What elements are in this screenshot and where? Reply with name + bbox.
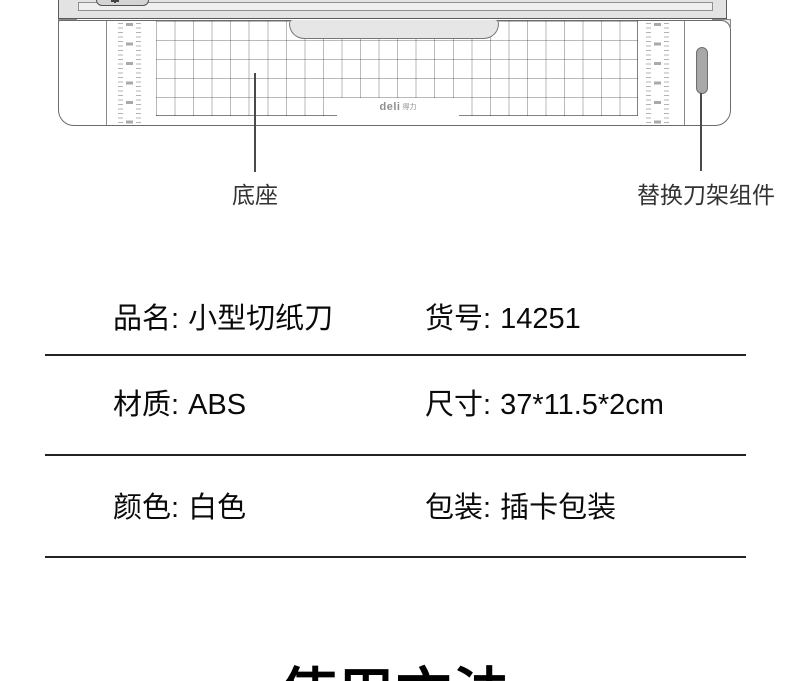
spec-label: 颜色: xyxy=(113,492,179,524)
base-right-seam xyxy=(684,21,685,125)
spec-cell: 尺寸:37*11.5*2cm xyxy=(425,389,664,421)
spec-cell: 包装:插卡包装 xyxy=(425,492,616,524)
spec-value: 小型切纸刀 xyxy=(188,303,333,335)
spec-value: ABS xyxy=(188,389,246,421)
replacement-blade-cartridge xyxy=(696,47,708,94)
table-divider xyxy=(45,454,746,456)
spec-label: 品名: xyxy=(113,303,179,335)
base-left-seam xyxy=(106,21,107,125)
blade-track xyxy=(78,2,713,11)
spec-label: 货号: xyxy=(425,303,491,335)
brand-logo-latin: deli xyxy=(380,101,401,113)
spec-cell: 颜色:白色 xyxy=(113,492,246,524)
carriage-mark-icon xyxy=(111,0,119,2)
brand-logo: deli 得力 xyxy=(337,98,459,116)
paper-guide-tab xyxy=(289,20,499,39)
brand-logo-cjk: 得力 xyxy=(402,102,416,112)
callout-line-base xyxy=(254,73,256,172)
spec-value: 白色 xyxy=(188,492,246,524)
spec-value: 37*11.5*2cm xyxy=(500,389,664,421)
spec-label: 尺寸: xyxy=(425,389,491,421)
spec-value: 插卡包装 xyxy=(500,492,616,524)
ruler-right xyxy=(646,23,669,125)
spec-row: 材质:ABS 尺寸:37*11.5*2cm xyxy=(45,389,745,421)
spec-cell: 货号:14251 xyxy=(425,303,581,335)
spec-row: 品名:小型切纸刀 货号:14251 xyxy=(45,303,745,335)
product-detail-page: deli 得力 底座 替换刀架组件 品名:小型切纸刀 货号:14251 材质:A… xyxy=(0,0,790,681)
cutter-rail xyxy=(58,0,727,19)
spec-row: 颜色:白色 包装:插卡包装 xyxy=(45,492,745,524)
spec-label: 包装: xyxy=(425,492,491,524)
section-title: 使用方法 xyxy=(0,649,790,681)
callout-label-blade: 替换刀架组件 xyxy=(637,176,775,210)
callout-label-base: 底座 xyxy=(205,176,305,210)
blade-carriage-handle xyxy=(96,0,149,6)
spec-label: 材质: xyxy=(113,389,179,421)
spec-value: 14251 xyxy=(500,303,581,335)
spec-cell: 品名:小型切纸刀 xyxy=(113,303,333,335)
spec-cell: 材质:ABS xyxy=(113,389,246,421)
cutter-base: deli 得力 xyxy=(58,20,731,126)
callout-line-blade xyxy=(700,93,702,171)
table-divider xyxy=(45,556,746,558)
table-divider xyxy=(45,354,746,356)
ruler-left xyxy=(118,23,141,125)
